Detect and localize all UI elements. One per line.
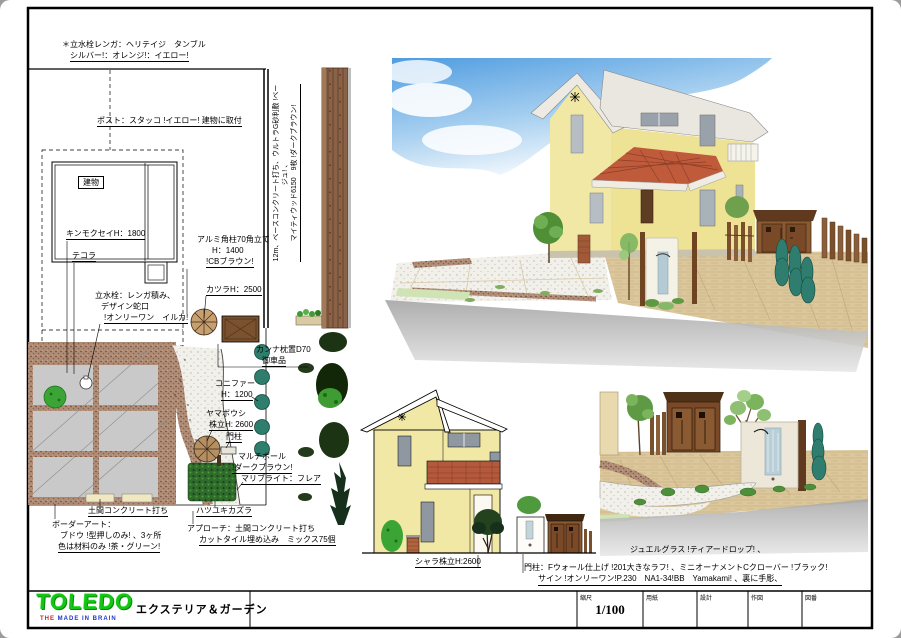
label-doma: 土間コンクリート打ち (88, 506, 168, 517)
company-tagline: THE MADE IN BRAIN (40, 616, 117, 622)
elevation-brick-pillar (407, 538, 419, 553)
front-door (641, 190, 653, 223)
label-alumi-line3: !CBブラウン! (206, 257, 254, 268)
plan-tree-yamaboushi (194, 436, 220, 462)
label-kinmokusei: キンモクセイH：1800 (66, 229, 145, 240)
label-post: ポスト：スタッコ !イエロー! 建物に取付 (97, 116, 242, 127)
plan-building-outline (52, 162, 177, 283)
house (531, 70, 768, 258)
label-conifer-line2: H：1200 (221, 390, 253, 401)
balcony (728, 144, 758, 161)
label-approach-line2: カットタイル埋め込み ミックス75個 (199, 535, 336, 546)
department-title: エクステリア＆ガーデン (136, 601, 268, 617)
label-conifer-line1: コニファー (215, 379, 255, 388)
label-tap-line1: 立水栓：レンガ積み、 (95, 291, 175, 300)
plan-tree-katsura (191, 309, 217, 335)
company-logo: TOLEDO (35, 589, 134, 615)
scale-header: 縮尺 (580, 593, 592, 602)
scale-value: 1/100 (577, 602, 643, 618)
label-tap-line2: デザイン蛇口 (101, 302, 149, 311)
label-tap-line3: !オンリーワン イルカ! (104, 313, 188, 324)
label-kanna-line1: カンナ枕置D70 (256, 345, 311, 354)
label-hatsuyuki: ハツユキカズラ (196, 506, 252, 517)
label-border-line1: ボーダーアート： (52, 520, 115, 529)
detail-shed (663, 392, 724, 452)
elevation-shed (545, 514, 585, 553)
label-katsura: カツラH：2500 (206, 285, 262, 296)
label-monchu: 門柱 (226, 432, 242, 443)
label-alumi-line1: アルミ角柱70角立て (197, 235, 270, 244)
label-building: 建物 (78, 176, 104, 189)
antenna (570, 92, 580, 102)
site-plan (28, 68, 351, 525)
number-header: 図番 (805, 593, 817, 602)
label-kanna-line2: 御車品 (262, 356, 286, 367)
design-header: 設計 (700, 593, 712, 602)
render-perspective-detail (600, 390, 868, 556)
plan-planter (296, 309, 322, 325)
detail-tree-left (626, 394, 654, 455)
label-maribulight: マリブライト：フレア (241, 474, 321, 485)
label-multipole-line2: !ダークブラウン! (232, 463, 292, 474)
note-brick-tap-line2: シルバー!：オレンジ!：イエロー! (70, 51, 189, 62)
shed-tree (725, 196, 749, 218)
tagline-part1: THE (40, 616, 55, 622)
plan-fence-elevation-strip (298, 68, 351, 525)
jewel-glass (658, 252, 668, 294)
detail-slat-fence (650, 412, 666, 455)
plan-tree-silhouettes (298, 332, 351, 525)
label-tekora: テコラ (72, 251, 96, 262)
paper-header: 用紙 (646, 593, 658, 602)
plan-shed (222, 316, 259, 342)
tagline-part2: MADE IN BRAIN (58, 616, 117, 622)
elevation-gate-tree (517, 496, 541, 514)
plan-hedge-hatsuyukikazura (188, 463, 236, 501)
label-fence-vertical: 12m、ベースコンクリート打ち、ウルトラG砂利敷 !ベージュ! 、 マイティウッ… (272, 84, 301, 262)
plan-gate-pillar (221, 447, 236, 454)
draft-header: 作図 (751, 593, 763, 602)
label-approach-line1: アプローチ：土間コンクリート打ち (187, 524, 315, 533)
caption-jewel-glass: ジュエルグラス !ティアードロップ! 、 (630, 544, 765, 555)
label-multipole-line1: マルチポール (238, 452, 286, 461)
elevation-bush (381, 520, 403, 552)
vent-mark (398, 413, 406, 421)
label-yamaboushi-line1: ヤマボウシ (206, 409, 246, 418)
detail-gate-pillar (741, 420, 806, 491)
caption-gate-line2: サイン !オンリーワン!P.230 NA1-34!BB Yamakami! 、裏… (538, 573, 782, 586)
label-yamaboushi-line2: 株立H: 2600 (209, 420, 253, 431)
label-border-line3: 色は材料のみ !茶・グリーン! (58, 542, 160, 553)
detail-teal-conifer (812, 423, 826, 480)
label-border-line2: ブドウ !型押しのみ! 、3ヶ所 (60, 531, 161, 540)
label-shara: シャラ株立H:2600 (415, 557, 481, 568)
label-alumi-line2: H：1400 (212, 246, 244, 255)
drawing-sheet: ＊立水栓レンガ：ヘリテイジ タンブル シルバー!：オレンジ!：イエロー! ポスト… (0, 0, 901, 638)
elevation-drawing (361, 390, 596, 573)
note-brick-tap-line1: ＊立水栓レンガ：ヘリテイジ タンブル (62, 40, 206, 49)
detail-corner-pillar (600, 392, 618, 455)
brick-tap-pillar (578, 235, 590, 263)
render-perspective-main (384, 58, 868, 372)
caption-gate-line1: 門柱：Fウォール仕上げ !201大きなラフ! 、ミニオーナメントCクローバー !… (524, 562, 828, 573)
